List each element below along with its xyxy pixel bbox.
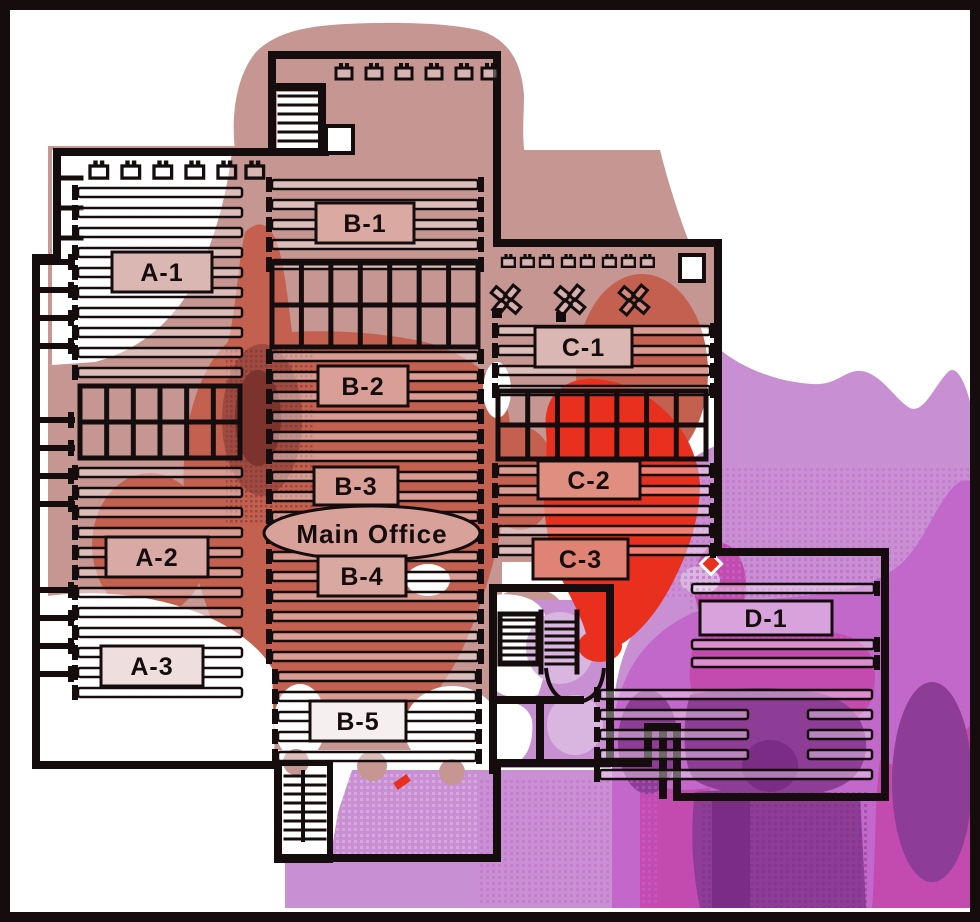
shelf-row [272, 432, 478, 441]
table-grid-col [525, 389, 530, 462]
chair-icon-part [196, 161, 200, 167]
chair-icon-part [569, 254, 572, 258]
chair-icon-part [509, 254, 512, 258]
shelf-row [600, 690, 872, 699]
shelf-endcap [266, 349, 272, 364]
wall [489, 584, 614, 592]
chair-icon-part [429, 63, 433, 68]
chair-icon-part [648, 254, 651, 258]
shelf-row [600, 750, 748, 759]
shelf-endcap [72, 245, 78, 260]
table-grid-col [104, 384, 109, 461]
chair-icon-part [564, 254, 567, 258]
chair-icon-part [588, 254, 591, 258]
zone-label-c-3: C-3 [533, 539, 628, 579]
main-office-label: Main Office [264, 506, 480, 560]
heat-rose-dot-3 [439, 759, 465, 785]
table-grid-col [184, 384, 189, 461]
shelf-endcap [266, 649, 272, 664]
chair-icon-part [93, 161, 97, 167]
zone-label-text: D-1 [744, 605, 787, 633]
column-room-top [326, 126, 353, 153]
wall [268, 51, 276, 156]
chair-icon-part [405, 63, 409, 68]
shelf-endcap [478, 589, 484, 604]
shelf-endcap [594, 707, 600, 722]
chair-icon-part [186, 166, 204, 178]
wall [493, 759, 501, 862]
shelf-endcap [710, 483, 716, 498]
chair-icon-part [547, 254, 550, 258]
shelf-endcap [710, 363, 716, 378]
chair-icon-part [122, 166, 140, 178]
dither-bottom [480, 780, 660, 905]
shelf-endcap [492, 503, 498, 518]
column-dot-1 [492, 308, 502, 318]
shelf-endcap [72, 625, 78, 640]
stair-top-tread [278, 95, 320, 98]
shelf-endcap [72, 225, 78, 240]
shelf-endcap [478, 237, 484, 252]
chair-icon-part [125, 161, 129, 167]
shelf-endcap [266, 469, 272, 484]
shelf-endcap [492, 363, 498, 378]
shelf-endcap [266, 217, 272, 232]
wall [32, 254, 40, 769]
shelf-row [692, 640, 874, 649]
shelf-endcap [710, 503, 716, 518]
chair-icon-part [366, 68, 382, 79]
wall [881, 548, 889, 801]
shelf-row [272, 352, 478, 361]
chair-icon-part [502, 258, 515, 267]
shelf-endcap [710, 543, 716, 558]
zone-label-text: A-1 [140, 259, 183, 287]
chair-icon-part [610, 254, 613, 258]
wall [673, 793, 889, 801]
table-grid-col [211, 384, 216, 461]
zone-label-b-5: B-5 [310, 701, 406, 741]
shelf-row [78, 628, 242, 637]
chair-icon-part [369, 63, 373, 68]
shelf-endcap [72, 485, 78, 500]
stair-top-tread [278, 149, 320, 152]
shelf-row [272, 632, 478, 641]
shelf-row [498, 526, 710, 535]
chair-icon-part [90, 166, 108, 178]
carrel-stub [55, 176, 84, 181]
elevator-tread [503, 633, 536, 636]
shelf-row [78, 608, 242, 617]
heat-violet-spot [742, 740, 798, 792]
zone-label-text: B-1 [343, 210, 386, 238]
shelf-row [78, 328, 242, 337]
shelf-endcap [478, 217, 484, 232]
shelf-endcap [476, 749, 482, 764]
coverage-map-screenshot: Main Office A-1A-2A-3B-1B-2B-3B-4B-5C-1C… [0, 0, 980, 922]
shelf-endcap [266, 429, 272, 444]
chair-icon-part [643, 254, 646, 258]
chair-icon-part [256, 161, 260, 167]
zone-label-c-2: C-2 [538, 461, 640, 499]
shelf-row [692, 584, 874, 593]
shelf-endcap [72, 605, 78, 620]
table-grid-col [299, 261, 304, 350]
shelf-row [272, 612, 478, 621]
shelf-endcap [266, 629, 272, 644]
chair-icon-part [345, 63, 349, 68]
chair-icon-part [100, 161, 104, 167]
chair-icon-part [339, 63, 343, 68]
stair-top-tread [278, 113, 320, 116]
table-grid-col [446, 261, 451, 350]
elevator-tread [503, 619, 536, 622]
shelf-row [600, 710, 748, 719]
column-dot-2 [556, 312, 566, 322]
chair-icon-part [189, 161, 193, 167]
shelf-endcap [72, 645, 78, 660]
shelf-endcap [478, 469, 484, 484]
chair-icon-part [542, 254, 545, 258]
stair-top-tread [278, 104, 320, 107]
shelf-row [692, 658, 874, 667]
shelf-endcap [266, 489, 272, 504]
shelf-endcap [478, 629, 484, 644]
zone-label-a-3: A-3 [101, 646, 203, 686]
shelf-endcap [72, 365, 78, 380]
elevator-tread [503, 654, 536, 657]
chair-icon-part [482, 68, 498, 79]
shelf-endcap [72, 665, 78, 680]
table-grid-col [328, 261, 333, 350]
elevator-tread [503, 647, 536, 650]
shelf-row [78, 508, 242, 517]
column-room-c [680, 255, 704, 281]
chair-icon-part [459, 63, 463, 68]
shelf-endcap [478, 449, 484, 464]
shelf-row [272, 652, 478, 661]
table-grid-col [131, 384, 136, 461]
shelf-endcap [266, 369, 272, 384]
shelf-endcap [492, 523, 498, 538]
table-grid-col [644, 389, 649, 462]
zone-label-d-1: D-1 [700, 601, 832, 635]
shelf-endcap [492, 483, 498, 498]
chair-icon-part [456, 68, 472, 79]
wall [714, 548, 889, 556]
shelf-endcap [478, 509, 484, 524]
shelf-endcap [72, 465, 78, 480]
chair-icon-part [336, 68, 352, 79]
heat-purple-right [892, 682, 972, 882]
stair-mid-tread [545, 628, 577, 631]
stair-mid-tread [545, 649, 577, 652]
chair-icon-part [426, 68, 442, 79]
shelf-row [278, 672, 476, 681]
shelf-endcap [272, 689, 278, 704]
shelf-endcap [478, 389, 484, 404]
zone-label-b-3: B-3 [314, 467, 398, 505]
shelf-endcap [272, 669, 278, 684]
chair-icon-part [641, 258, 654, 267]
shelf-endcap [710, 463, 716, 478]
shelf-endcap [478, 409, 484, 424]
chair-icon-part [228, 161, 232, 167]
wall [268, 51, 501, 59]
shelf-endcap [874, 581, 880, 596]
zone-label-text: C-3 [559, 546, 602, 574]
stair-top-tread [278, 131, 320, 134]
shelf-endcap [72, 205, 78, 220]
shelf-endcap [266, 409, 272, 424]
table-grid-col [387, 261, 392, 350]
shelf-endcap [710, 383, 716, 398]
shelf-endcap [266, 197, 272, 212]
zone-label-text: A-2 [135, 544, 178, 572]
wall [536, 696, 544, 767]
shelf-row [272, 412, 478, 421]
chair-icon-part [154, 166, 172, 178]
shelf-row [78, 308, 242, 317]
dither-lavender-light [290, 774, 480, 860]
shelf-endcap [478, 197, 484, 212]
table-grid-col [417, 261, 422, 350]
shelf-row [808, 710, 872, 719]
zone-label-text: C-1 [562, 334, 605, 362]
main-office-text: Main Office [296, 519, 447, 549]
shelf-endcap [272, 729, 278, 744]
zone-label-a-1: A-1 [112, 252, 212, 292]
shelf-endcap [478, 609, 484, 624]
shelf-endcap [478, 489, 484, 504]
chair-icon-part [605, 254, 608, 258]
shelf-endcap [266, 237, 272, 252]
shelf-endcap [492, 343, 498, 358]
chair-icon-part [164, 161, 168, 167]
table-grid-col [555, 389, 560, 462]
chair-icon-part [221, 161, 225, 167]
chair-icon-part [485, 63, 489, 68]
chair-icon-part [562, 258, 575, 267]
chair-icon-part [218, 166, 236, 178]
wall [53, 148, 61, 262]
shelf-endcap [266, 589, 272, 604]
shelf-endcap [72, 565, 78, 580]
shelf-endcap [72, 505, 78, 520]
shelf-endcap [478, 569, 484, 584]
chair-icon-part [629, 254, 632, 258]
shelf-endcap [492, 323, 498, 338]
shelf-row [78, 208, 242, 217]
shelf-endcap [72, 545, 78, 560]
wall [32, 761, 282, 769]
chair-icon-part [540, 258, 553, 267]
chair-icon-part [465, 63, 469, 68]
shelf-endcap [72, 685, 78, 700]
shelf-endcap [478, 549, 484, 564]
shelf-endcap [874, 637, 880, 652]
shelf-row [808, 730, 872, 739]
shelf-row [78, 228, 242, 237]
shelf-endcap [266, 609, 272, 624]
zone-label-text: B-4 [340, 563, 383, 591]
shelf-row [272, 180, 478, 189]
shelf-row [78, 468, 242, 477]
shelf-row [78, 688, 242, 697]
shelf-endcap [710, 523, 716, 538]
floor-plan-svg: Main Office A-1A-2A-3B-1B-2B-3B-4B-5C-1C… [0, 0, 980, 922]
shelf-row [78, 368, 242, 377]
chair-icon-part [523, 254, 526, 258]
shelf-endcap [72, 285, 78, 300]
table-grid-col [158, 384, 163, 461]
shelf-endcap [478, 369, 484, 384]
zone-label-text: A-3 [130, 653, 173, 681]
chair-icon-part [435, 63, 439, 68]
shelf-row [498, 506, 710, 515]
carrel-cap [68, 412, 74, 428]
shelf-endcap [72, 525, 78, 540]
shelf-endcap [476, 669, 482, 684]
chair-icon-part [603, 258, 616, 267]
chair-icon-part [375, 63, 379, 68]
elevator-tread [503, 640, 536, 643]
shelf-row [600, 770, 872, 779]
shelf-endcap [594, 747, 600, 762]
shelf-endcap [266, 449, 272, 464]
zone-label-a-2: A-2 [106, 537, 208, 577]
stair-mid-tread [545, 642, 577, 645]
shelf-endcap [272, 709, 278, 724]
table-grid-col [358, 261, 363, 350]
shelf-endcap [266, 569, 272, 584]
zone-label-text: B-2 [341, 373, 384, 401]
shelf-endcap [72, 585, 78, 600]
shelf-endcap [594, 727, 600, 742]
chair-icon-part [246, 166, 264, 178]
elevator-tread [503, 626, 536, 629]
stair-mid-tread [545, 621, 577, 624]
wall [659, 731, 667, 799]
heat-red-tail [578, 630, 622, 662]
zone-label-text: B-5 [336, 708, 379, 736]
shelf-endcap [874, 655, 880, 670]
zone-label-b-2: B-2 [318, 366, 408, 406]
chair-icon-part [491, 63, 495, 68]
shelf-endcap [710, 343, 716, 358]
shelf-endcap [72, 325, 78, 340]
shelf-row [600, 730, 748, 739]
shelf-endcap [266, 389, 272, 404]
shelf-endcap [710, 323, 716, 338]
shelf-endcap [594, 767, 600, 782]
zone-label-b-1: B-1 [316, 203, 414, 243]
shelf-endcap [72, 265, 78, 280]
chair-icon-part [528, 254, 531, 258]
chair-icon-part [622, 258, 635, 267]
table-grid-col [614, 389, 619, 462]
chair-icon-part [157, 161, 161, 167]
shelf-endcap [492, 463, 498, 478]
chair-icon-part [521, 258, 534, 267]
shelf-row [78, 488, 242, 497]
wall [268, 83, 326, 91]
chair-icon-part [396, 68, 412, 79]
carrel-cap [68, 440, 74, 456]
shelf-endcap [476, 689, 482, 704]
table-grid-col [585, 389, 590, 462]
shelf-row [78, 348, 242, 357]
shelf-row [78, 588, 242, 597]
shelf-endcap [476, 709, 482, 724]
shelf-endcap [72, 345, 78, 360]
wall [489, 584, 497, 774]
stair-mid-tread [545, 656, 577, 659]
stair-mid-tread [545, 635, 577, 638]
chair-icon-part [583, 254, 586, 258]
zone-label-text: C-2 [567, 467, 610, 495]
shelf-row [272, 452, 478, 461]
stair-mid-tread [545, 663, 577, 666]
stair-annex-rail [301, 770, 305, 842]
shelf-endcap [478, 649, 484, 664]
shelf-endcap [266, 549, 272, 564]
shelf-endcap [492, 543, 498, 558]
shelf-endcap [266, 177, 272, 192]
shelf-row [278, 752, 476, 761]
stair-top-tread [278, 122, 320, 125]
shelf-row [78, 188, 242, 197]
shelf-endcap [478, 177, 484, 192]
shelf-row [808, 750, 872, 759]
chair-icon-part [399, 63, 403, 68]
shelf-endcap [72, 305, 78, 320]
chair-icon-part [249, 161, 253, 167]
stair-top-tread [278, 140, 320, 143]
chair-icon-part [581, 258, 594, 267]
table-grid-col [674, 389, 679, 462]
zone-label-text: B-3 [334, 473, 377, 501]
shelf-endcap [478, 349, 484, 364]
chair-icon-part [624, 254, 627, 258]
zone-label-c-1: C-1 [535, 327, 632, 367]
zone-label-b-4: B-4 [318, 556, 406, 596]
shelf-endcap [478, 429, 484, 444]
wall [493, 239, 722, 247]
shelf-endcap [72, 185, 78, 200]
chair-icon-part [132, 161, 136, 167]
chair-icon-part [504, 254, 507, 258]
shelf-endcap [476, 729, 482, 744]
dither-violet [700, 790, 870, 908]
